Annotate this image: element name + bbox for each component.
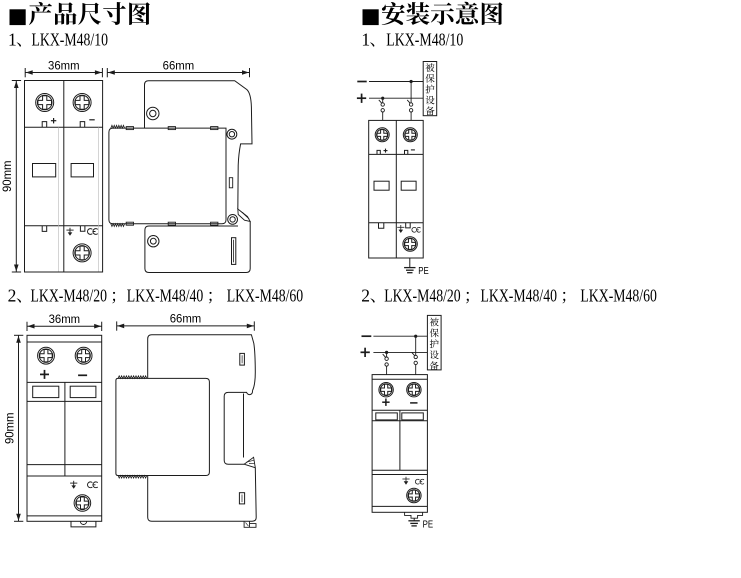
svg-text:LKX-M48/20: LKX-M48/20 — [31, 285, 108, 305]
svg-text:1: 1 — [361, 29, 370, 49]
svg-text:LKX-M48/20: LKX-M48/20 — [384, 285, 461, 305]
svg-text:1: 1 — [8, 29, 17, 49]
svg-text:LKX-M48/40: LKX-M48/40 — [127, 285, 204, 305]
svg-text:90mm: 90mm — [2, 413, 16, 445]
svg-text:36mm: 36mm — [48, 58, 80, 72]
svg-text:66mm: 66mm — [163, 58, 195, 72]
svg-text:LKX-M48/60: LKX-M48/60 — [227, 285, 304, 305]
svg-text:PE: PE — [423, 520, 434, 531]
svg-text:LKX-M48/40: LKX-M48/40 — [481, 285, 558, 305]
svg-text:2: 2 — [8, 285, 17, 305]
svg-text:36mm: 36mm — [49, 312, 81, 326]
svg-text:66mm: 66mm — [170, 312, 202, 326]
svg-text:LKX-M48/10: LKX-M48/10 — [32, 29, 109, 49]
svg-text:LKX-M48/10: LKX-M48/10 — [386, 29, 463, 49]
svg-text:90mm: 90mm — [0, 161, 14, 193]
svg-text:LKX-M48/60: LKX-M48/60 — [580, 285, 657, 305]
svg-text:PE: PE — [418, 266, 429, 277]
svg-text:2: 2 — [361, 285, 370, 305]
